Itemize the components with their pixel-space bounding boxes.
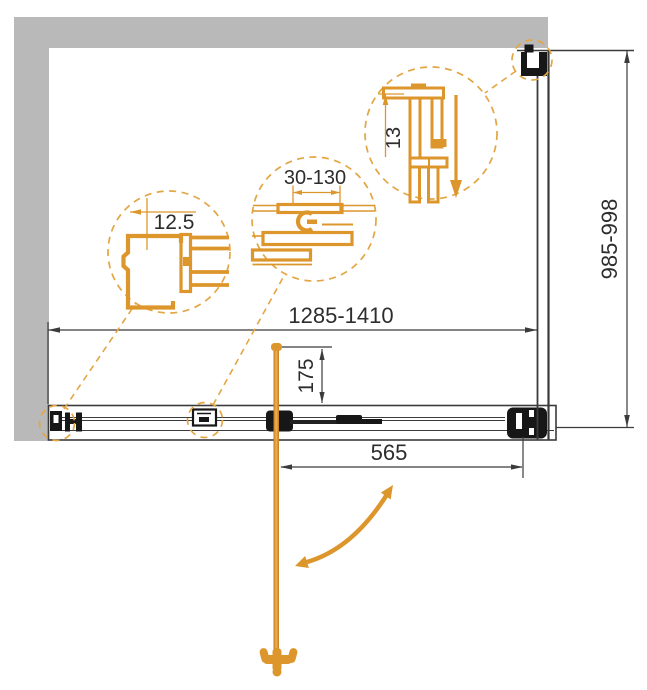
detail-dimension-arrow [293, 190, 302, 195]
dimension-arrow-left [48, 327, 60, 333]
roller-assembly [507, 408, 547, 439]
adjustment-profile-lower-bar [253, 250, 311, 260]
bottom-rail-profile [49, 406, 557, 441]
door-handle-cap [271, 343, 282, 351]
dimension-arrow-bottom [319, 392, 324, 403]
dimension-width: 1285-1410 [48, 303, 537, 404]
adjustment-clamp-bar [307, 220, 317, 225]
dimension-arrow-bottom [624, 415, 630, 427]
dimension-arrow-top [624, 51, 630, 63]
wall-profile-channel [124, 236, 182, 308]
swing-arrow-curve [307, 496, 386, 562]
adjustment-profile-bottom-bar [263, 233, 352, 245]
dimension-handle-offset: 175 [281, 347, 332, 403]
glass-gap-lower-post [410, 167, 420, 202]
roller-slot [529, 410, 534, 417]
dimension-label-depth: 985-998 [597, 199, 622, 280]
detail-label-wall-profile: 12.5 [154, 211, 195, 234]
glass-clamp-block [199, 417, 209, 422]
door-handle-bar [274, 350, 280, 660]
walls [14, 17, 548, 441]
roller-slot [529, 428, 534, 435]
detail-dimension-arrow [331, 190, 340, 195]
detail-leader-line [485, 71, 516, 93]
bracket-channel [527, 52, 539, 68]
door-handle-knob [259, 647, 299, 676]
knob-tip [273, 668, 282, 677]
technical-drawing-canvas: 1285-1410 985-998 175 565 12.5 [0, 0, 647, 690]
detail-circle-glass-gap: 13 [365, 67, 497, 202]
door-bumper [336, 415, 362, 424]
glass-gap-lower-post [429, 167, 439, 202]
slide-direction-arrow-head [450, 180, 462, 198]
wall-anchor-slot [54, 415, 59, 423]
swing-arrow-head-bottom [295, 556, 309, 568]
detail-circle-adjustment: 30-130 [252, 157, 376, 281]
wall-left [14, 17, 49, 441]
drawing-page: 1285-1410 985-998 175 565 12.5 [0, 0, 647, 690]
glass-gap-tab [411, 84, 426, 90]
handle-mount [266, 411, 293, 432]
side-panel [538, 50, 549, 440]
dimension-label-handle-offset: 175 [295, 358, 318, 393]
knob-left-arm [259, 647, 271, 664]
detail-dimension-arrow [130, 209, 141, 214]
wall-top [14, 17, 548, 48]
dimension-handle-distance: 565 [280, 437, 523, 478]
dimension-label-width: 1285-1410 [288, 303, 393, 328]
roller-slot [516, 413, 522, 429]
dimension-arrow-top [319, 349, 324, 360]
dimension-arrow-right [525, 327, 537, 333]
dimension-arrow-left [280, 464, 292, 469]
wall-profile-block [183, 257, 191, 266]
detail-leader-line [64, 303, 136, 409]
detail-label-glass-gap: 13 [383, 127, 405, 149]
bracket-tab [525, 45, 534, 53]
door-bumper-tail [360, 419, 382, 424]
door-handle [259, 343, 299, 677]
dimension-depth: 985-998 [556, 51, 634, 428]
glass-gap-left-post [410, 98, 420, 158]
dimension-label-handle-distance: 565 [371, 440, 408, 465]
detail-circle-wall-profile: 12.5 [108, 191, 230, 313]
dimension-arrow-right [511, 464, 523, 469]
knob-right-arm [287, 647, 299, 664]
top-wall-bracket [517, 45, 634, 77]
glass-gap-step [432, 139, 447, 147]
door-swing-arrow [295, 485, 393, 568]
